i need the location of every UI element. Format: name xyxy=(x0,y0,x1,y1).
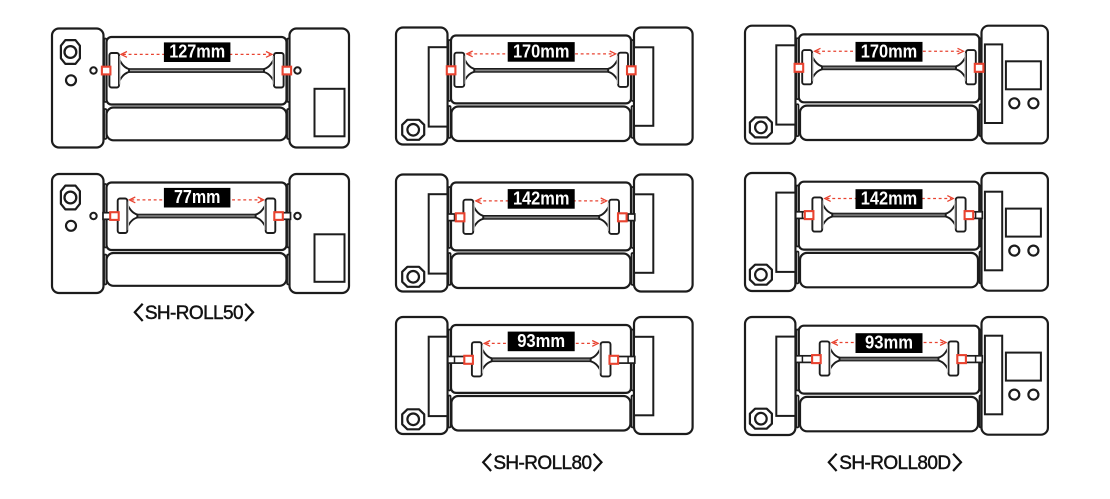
svg-text:SH-ROLL50: SH-ROLL50 xyxy=(145,303,243,324)
svg-text:142mm: 142mm xyxy=(861,189,918,209)
svg-text:93mm: 93mm xyxy=(865,333,913,353)
svg-text:170mm: 170mm xyxy=(513,41,570,61)
svg-text:142mm: 142mm xyxy=(513,188,570,208)
svg-text:170mm: 170mm xyxy=(861,41,918,61)
svg-text:127mm: 127mm xyxy=(169,42,225,62)
svg-text:SH-ROLL80D: SH-ROLL80D xyxy=(839,453,950,474)
svg-text:93mm: 93mm xyxy=(517,331,565,351)
svg-text:SH-ROLL80: SH-ROLL80 xyxy=(493,453,591,474)
svg-text:77mm: 77mm xyxy=(174,187,221,207)
